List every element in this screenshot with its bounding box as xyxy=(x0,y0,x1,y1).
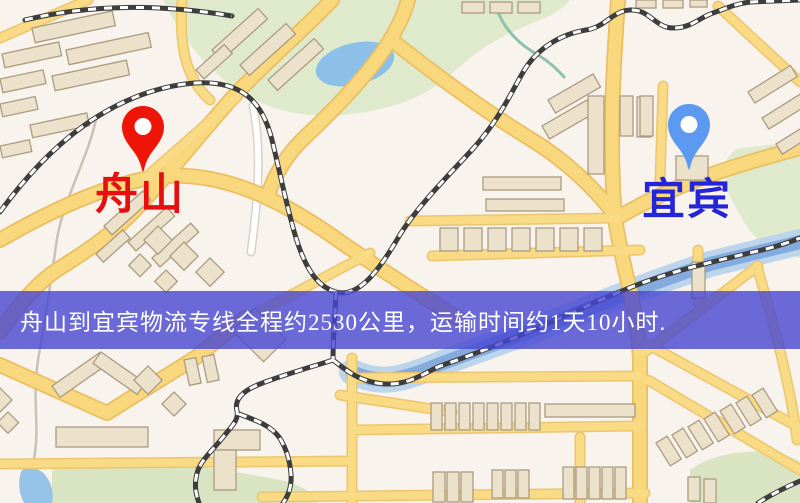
marker-label-zhoushan: 舟山 xyxy=(95,172,185,219)
marker-label-yibin: 宜宾 xyxy=(642,177,732,224)
marker-zhoushan[interactable] xyxy=(121,106,165,172)
route-info-banner: 舟山到宜宾物流专线全程约2530公里，运输时间约1天10小时. xyxy=(0,291,800,349)
map-background xyxy=(0,0,800,503)
pin-icon xyxy=(667,104,711,170)
pin-icon xyxy=(121,106,165,172)
map-canvas: 舟山到宜宾物流专线全程约2530公里，运输时间约1天10小时. 舟山宜宾 xyxy=(0,0,800,503)
marker-yibin[interactable] xyxy=(667,104,711,170)
route-info-text: 舟山到宜宾物流专线全程约2530公里，运输时间约1天10小时. xyxy=(20,303,666,337)
